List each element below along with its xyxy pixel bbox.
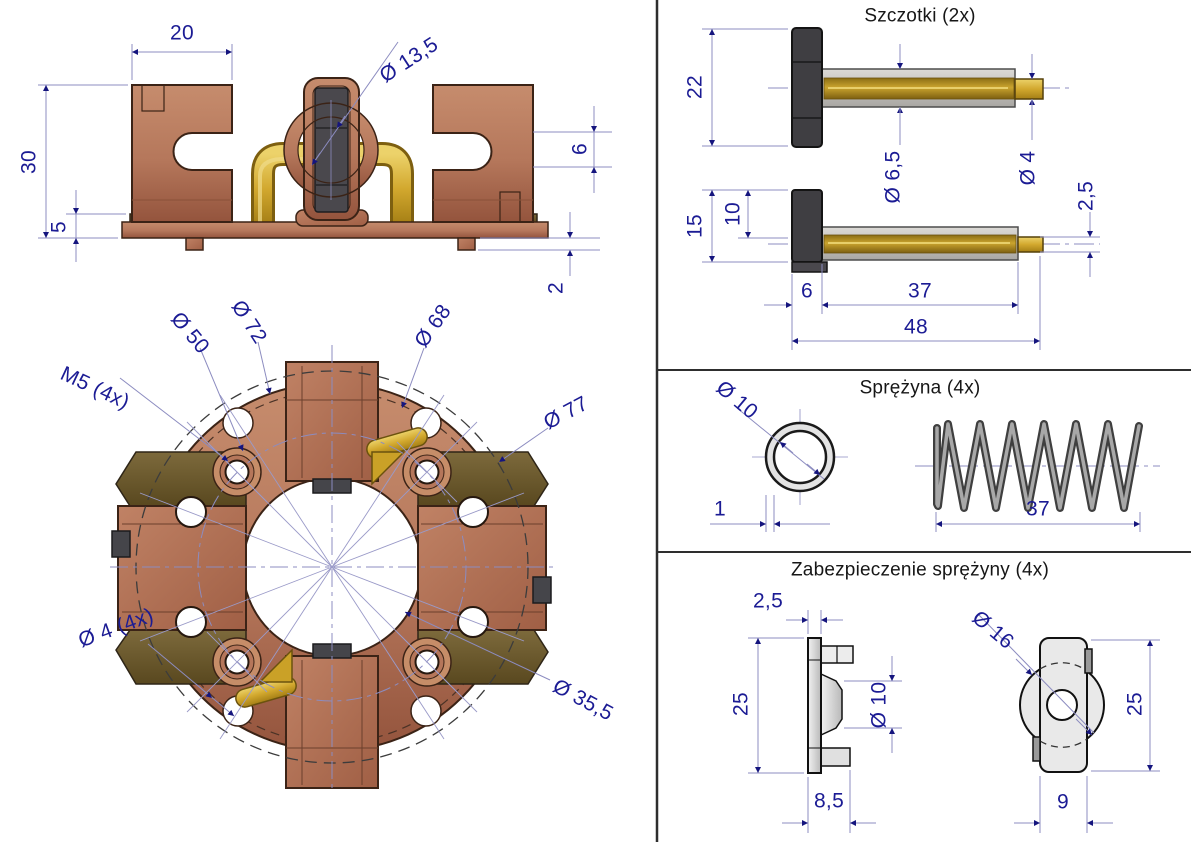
dim-retainer-height-right: 25: [1125, 692, 1146, 716]
spring-title: Sprężyna (4x): [860, 379, 981, 398]
brushes-panel: [768, 28, 1100, 272]
dim-brush-height: 22: [685, 75, 706, 99]
dim-bracket-width: 20: [170, 23, 194, 44]
dim-boss-dia: Ø 10: [869, 682, 890, 729]
shunt-tip-2: [1018, 237, 1043, 252]
brushes-title: Szczotki (2x): [864, 7, 975, 26]
carbon-brush-front: [315, 88, 348, 212]
dim-plate-thickness: 2,5: [753, 591, 783, 612]
dim-tip-dia: Ø 4: [1018, 151, 1039, 186]
dim-foot-width: 8,5: [814, 791, 844, 812]
left-bracket: [132, 85, 232, 222]
dim-body-width: 9: [1057, 792, 1069, 813]
dim-shunt-length: 37: [908, 281, 932, 302]
dim-wire-dia: 1: [714, 499, 726, 520]
dim-total-height: 30: [19, 150, 40, 174]
shunt-tip-1: [1015, 79, 1043, 99]
retainer-plate: [808, 638, 821, 773]
plan-view: [110, 345, 554, 792]
dim-total-length: 48: [904, 317, 928, 338]
dim-spring-length: 37: [1026, 499, 1050, 520]
dim-brush2-height: 15: [685, 214, 706, 238]
spring-end-view-inner: [774, 431, 826, 483]
dim-retainer-height-left: 25: [731, 692, 752, 716]
front-elevation-view: [122, 78, 548, 250]
spring-panel: [710, 408, 1160, 532]
dim-tip2-dia: 2,5: [1076, 181, 1097, 211]
dim-block-width: 6: [801, 281, 813, 302]
dim-slot-height: 6: [570, 143, 591, 155]
retainer-boss: [821, 674, 842, 735]
retainer-panel: [748, 610, 1160, 833]
dim-foot-height: 2: [546, 282, 567, 294]
carbon-brush-2: [792, 190, 822, 262]
dim-shunt-dia: Ø 6,5: [883, 151, 904, 204]
retainer-title: Zabezpieczenie sprężyny (4x): [791, 561, 1049, 580]
right-bracket: [433, 85, 533, 222]
technical-drawing-sheet: 20 30 5 Ø 13,5 6 2 M5 (4x) Ø 50 Ø 72 Ø 6…: [0, 0, 1191, 842]
dim-base-height: 5: [49, 221, 70, 233]
retainer-hole: [1047, 690, 1077, 720]
carbon-brush-1: [792, 28, 822, 147]
dim-lead-offset: 10: [723, 202, 744, 226]
